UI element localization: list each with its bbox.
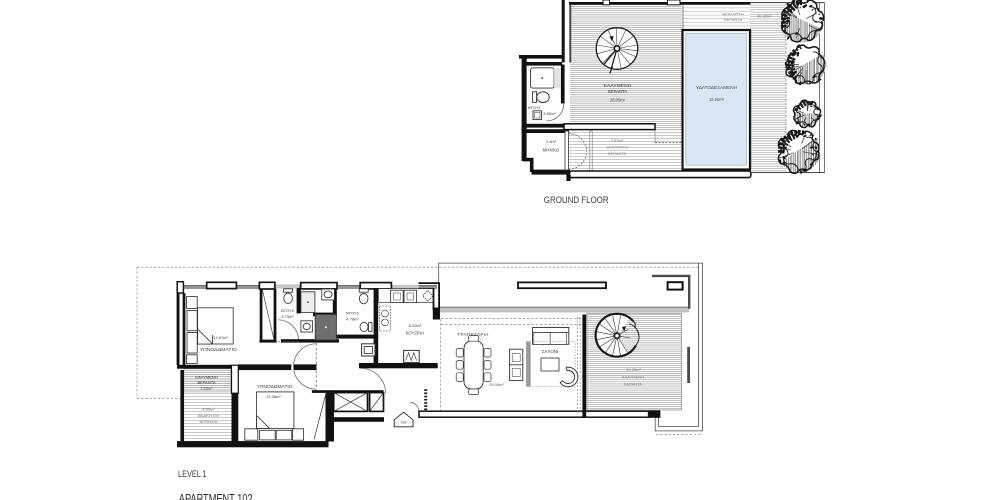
svg-text:ΚΑΛΥΜΕΝΗ: ΚΑΛΥΜΕΝΗ: [195, 375, 217, 380]
svg-text:26.05m²: 26.05m²: [610, 97, 626, 102]
svg-text:ΝΤΟΥΣ: ΝΤΟΥΣ: [281, 308, 295, 313]
svg-text:APARTMENT 102: APARTMENT 102: [179, 492, 253, 500]
svg-text:19.25m²: 19.25m²: [626, 367, 641, 372]
svg-text:102: 102: [401, 421, 407, 425]
svg-text:ΚΑΛΥΜΕΝΗ: ΚΑΛΥΜΕΝΗ: [604, 83, 632, 88]
svg-text:2.25m²: 2.25m²: [201, 386, 214, 390]
svg-text:ΒΕΡΑΝΤΑ: ΒΕΡΑΝΤΑ: [624, 381, 642, 386]
svg-text:2.4m²: 2.4m²: [546, 139, 557, 144]
svg-text:ΒΕΡΑΝΤΑ: ΒΕΡΑΝΤΑ: [608, 89, 627, 94]
svg-text:3.50m²: 3.50m²: [543, 111, 556, 116]
svg-text:ΒΕΡΑΝΤΑ: ΒΕΡΑΝΤΑ: [197, 380, 215, 385]
svg-text:LEVEL 1: LEVEL 1: [178, 469, 207, 479]
svg-text:7.63m²: 7.63m²: [611, 138, 624, 143]
svg-text:29.00m²: 29.00m²: [489, 382, 504, 387]
svg-text:ΒΕΡΑΝΤΑ: ΒΕΡΑΝΤΑ: [724, 17, 742, 22]
svg-text:11.38m²: 11.38m²: [266, 394, 281, 399]
svg-text:ΣΑΛΟΝΙ: ΣΑΛΟΝΙ: [542, 349, 558, 354]
svg-text:ΑΚΑΛΥΠΤΗ: ΑΚΑΛΥΠΤΗ: [606, 145, 627, 150]
svg-text:13.67m²: 13.67m²: [213, 335, 228, 340]
svg-text:ΥΠΝΟΔΩΜΑΤΙΟ: ΥΠΝΟΔΩΜΑΤΙΟ: [200, 347, 238, 352]
svg-text:4.78m²: 4.78m²: [346, 317, 359, 322]
svg-text:GROUND FLOOR: GROUND FLOOR: [544, 195, 609, 205]
svg-text:ΚΑΛΥΜΕΝΗ: ΚΑΛΥΜΕΝΗ: [622, 374, 644, 379]
svg-text:16.60m²: 16.60m²: [709, 97, 725, 102]
svg-text:ΑΚΑΛΥΠΤΗ: ΑΚΑΛΥΠΤΗ: [722, 12, 743, 17]
svg-text:ΥΠΝΟΔΩΜΑΤΙΟ: ΥΠΝΟΔΩΜΑΤΙΟ: [257, 384, 294, 389]
svg-text:ΥΔΑΤΟΔΕΞΑΜΕΝΗ: ΥΔΑΤΟΔΕΞΑΜΕΝΗ: [696, 85, 737, 90]
svg-text:ΝΤΟΥΣ: ΝΤΟΥΣ: [346, 311, 360, 316]
svg-text:20.32m²: 20.32m²: [757, 14, 772, 19]
svg-text:ΒΕΡΑΝΤΑ: ΒΕΡΑΝΤΑ: [608, 151, 626, 156]
svg-text:ΑΚΑΛΥΠΤΗ: ΑΚΑΛΥΠΤΗ: [198, 413, 219, 418]
svg-text:3.73m²: 3.73m²: [281, 314, 294, 319]
svg-text:ΜΗΧ/ΚΟ: ΜΗΧ/ΚΟ: [543, 148, 560, 153]
svg-text:4.59m²: 4.59m²: [202, 406, 215, 411]
svg-text:ΤΡΑΠΕΖΑΡΙΑ: ΤΡΑΠΕΖΑΡΙΑ: [457, 332, 489, 337]
svg-text:ΒΕΡΑΝΤΑ: ΒΕΡΑΝΤΑ: [199, 419, 217, 424]
svg-text:ΚΟΥΖΙΝΑ: ΚΟΥΖΙΝΑ: [406, 331, 425, 336]
svg-text:6.02m²: 6.02m²: [409, 323, 422, 328]
svg-text:ΝΤΟΥΣ: ΝΤΟΥΣ: [528, 105, 542, 110]
